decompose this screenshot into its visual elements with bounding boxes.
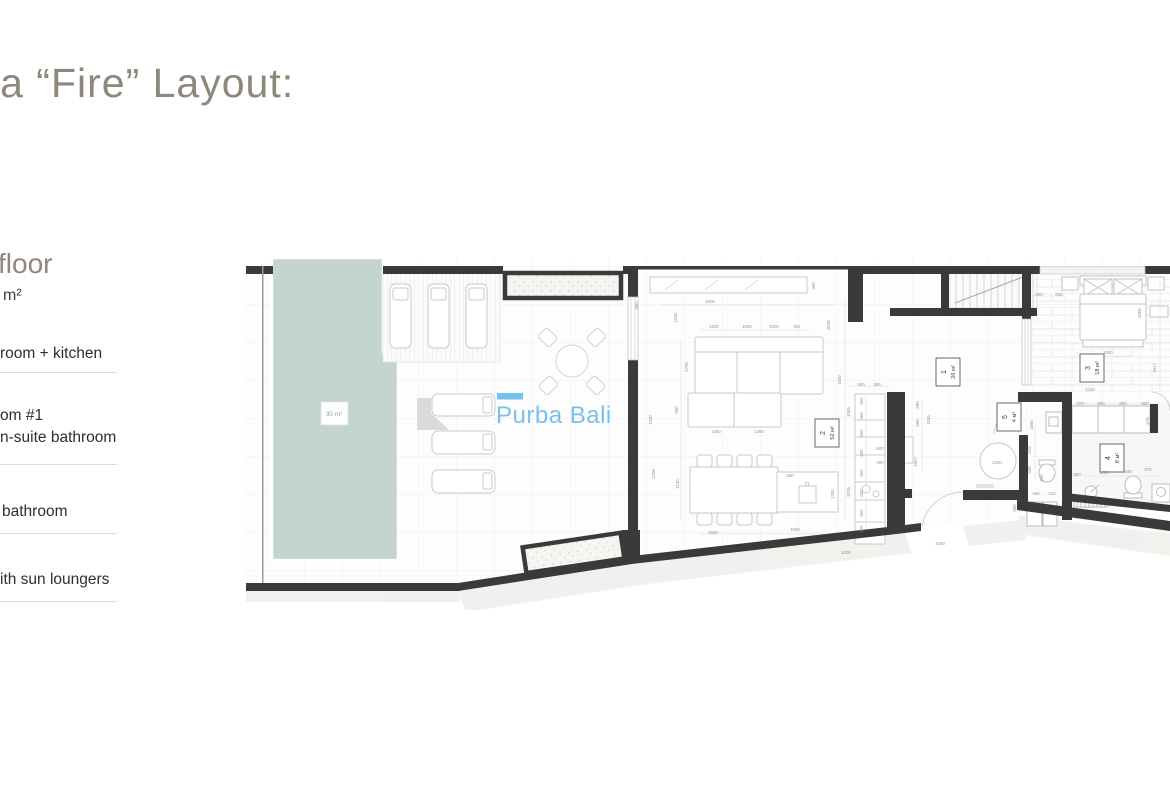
dimension-text: 2500 — [708, 530, 718, 535]
dimension-text: 1600 — [1103, 350, 1113, 355]
dimension-text: 1000 — [769, 324, 779, 329]
dimension-text: 850 — [1035, 292, 1043, 297]
dimension-text: 1338 — [673, 313, 678, 323]
dimension-text: 500 — [857, 382, 865, 387]
dimension-text: 1000 — [841, 550, 851, 555]
dimension-text: 375 — [1144, 467, 1152, 472]
dimension-text: 600 — [859, 489, 864, 497]
dimension-text: 590 — [915, 401, 920, 409]
dimension-text: 401 — [793, 324, 801, 329]
dimension-text: 1507 — [913, 457, 918, 467]
dimension-text: 400 — [811, 282, 816, 290]
door-mat — [976, 484, 994, 488]
room-area: 18 м² — [1095, 361, 1101, 375]
dimension-text: 600 — [859, 509, 864, 517]
dimension-text: 340 — [1027, 466, 1032, 474]
dimension-text: 515 — [1027, 446, 1032, 454]
dimension-text: 800 — [1141, 401, 1149, 406]
toilet — [1125, 476, 1141, 494]
dimension-text: 500 — [859, 429, 864, 437]
dimension-text: 1208 — [651, 469, 656, 479]
dimension-text: 1185 — [926, 415, 931, 425]
room-area: 26 м² — [951, 365, 957, 379]
room-area: 8 м² — [1115, 453, 1121, 464]
dimension-text: 800 — [1119, 401, 1127, 406]
dimension-text: 600 — [674, 406, 679, 414]
dimension-text: 1140 — [675, 479, 680, 489]
dimension-text: 800 — [1073, 472, 1081, 477]
dimension-text: 385 — [873, 382, 881, 387]
bench — [1150, 306, 1168, 317]
sun-lounger — [390, 284, 487, 348]
kitchen-island — [777, 472, 838, 512]
dimension-text: 1430 — [648, 415, 653, 425]
legend-item-terrace: ith sun loungers — [0, 569, 109, 591]
floor-area: m² — [3, 287, 22, 305]
dimension-text: 500 — [859, 397, 864, 405]
divider — [0, 601, 117, 602]
dimension-text: 800 — [1097, 401, 1105, 406]
dimension-text: 1200 — [1099, 470, 1109, 475]
hall-console — [904, 437, 913, 463]
planter-box — [505, 273, 621, 298]
dimension-text: 595 — [915, 419, 920, 427]
room-number: 1 — [941, 370, 948, 374]
dimension-text: 1000 — [935, 541, 945, 546]
dimension-text: 600 — [859, 469, 864, 477]
room-area: 4 м² — [1012, 412, 1018, 423]
legend-item-living: room + kitchen — [0, 343, 102, 365]
dimension-text: 425 — [859, 525, 864, 533]
watermark-bar — [497, 393, 523, 400]
dimension-text: 2030 — [826, 320, 831, 330]
dimension-text: 380 — [634, 302, 639, 310]
dimension-text: 560 — [1012, 504, 1017, 512]
divider — [0, 372, 117, 373]
divider — [0, 464, 117, 465]
dimension-text: 1550 — [1029, 420, 1034, 430]
dimension-text: 1300 — [711, 429, 721, 434]
dimension-text: 365 — [859, 412, 864, 420]
dimension-text: 1000 — [742, 324, 752, 329]
dimension-text: 370 — [1076, 401, 1084, 406]
dimension-text: 340 — [1124, 469, 1132, 474]
dimension-text: 2000 — [1137, 308, 1142, 318]
room-number: 2 — [820, 431, 827, 435]
floor-plan-svg: 30 m² — [245, 250, 1170, 610]
sun-lounger — [432, 394, 495, 493]
floor-plan: 30 m² — [245, 250, 1170, 610]
dimension-text: 1600 — [837, 375, 842, 385]
dimension-text: 4500 — [705, 299, 715, 304]
dimension-text: 440 — [1032, 491, 1040, 496]
room-number: 4 — [1105, 456, 1112, 460]
dimension-text: 600 — [876, 446, 884, 451]
nightstand — [1062, 277, 1078, 290]
dimension-text: 575 — [1145, 417, 1150, 425]
nightstand — [1148, 277, 1164, 290]
hob-burner — [873, 491, 879, 497]
dimension-text: 600 — [859, 449, 864, 457]
watermark-text: Purba Bali — [496, 402, 612, 429]
legend-bedroom-line1: om #1 — [0, 407, 43, 424]
window — [1022, 319, 1031, 385]
legend-bedroom-line2: n-suite bathroom — [0, 429, 116, 446]
dimension-text: 1000 — [992, 460, 1002, 465]
dimension-text: 1200 — [830, 489, 835, 499]
dimension-text: 550 — [786, 473, 794, 478]
tv-console — [650, 277, 807, 293]
slide: { "page": { "title": "la \u201cFire\u201… — [0, 0, 1170, 785]
dimension-text: 1700 — [684, 362, 689, 372]
legend-item-bathroom: bathroom — [2, 501, 67, 523]
room-number: 5 — [1002, 415, 1009, 419]
dimension-text: 1800 — [790, 527, 800, 532]
dimension-text: 2025 — [846, 487, 851, 497]
dimension-text: 1817 — [1152, 363, 1157, 373]
legend-item-bedroom: om #1 n-suite bathroom — [0, 405, 116, 449]
dimension-text: 300 — [876, 460, 884, 465]
dimension-text: 600 — [1039, 474, 1044, 482]
dimension-text: 1300 — [754, 429, 764, 434]
dimension-text: 410 — [1048, 491, 1056, 496]
pool-area-label: 30 m² — [326, 411, 343, 418]
room-number: 3 — [1085, 366, 1092, 370]
dimension-text: 1365 — [846, 407, 851, 417]
dimension-text: 840 — [1055, 292, 1063, 297]
window — [1040, 267, 1145, 274]
room-area: 52 м² — [830, 426, 836, 440]
dimension-text: 2110 — [1085, 387, 1095, 392]
floor-heading: floor — [0, 248, 52, 280]
pool: 30 m² — [272, 258, 398, 560]
page-title: la “Fire” Layout: — [0, 60, 294, 107]
wardrobe — [1072, 406, 1150, 433]
dimension-text: 1200 — [709, 324, 719, 329]
divider — [0, 533, 117, 534]
